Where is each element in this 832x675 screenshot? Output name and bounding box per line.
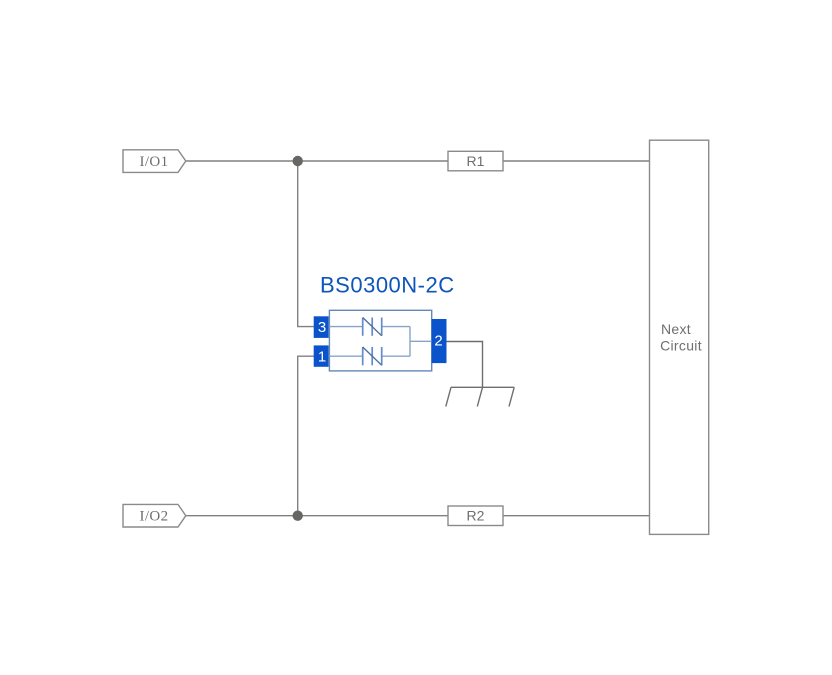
svg-text:1: 1 (318, 349, 326, 366)
svg-text:R1: R1 (467, 153, 485, 169)
svg-text:Next: Next (661, 321, 691, 337)
svg-text:BS0300N-2C: BS0300N-2C (320, 273, 455, 298)
svg-text:I/O2: I/O2 (139, 509, 168, 525)
svg-text:3: 3 (318, 319, 326, 336)
svg-text:R2: R2 (467, 508, 485, 524)
svg-text:Circuit: Circuit (660, 338, 702, 354)
svg-text:I/O1: I/O1 (139, 154, 168, 170)
svg-text:2: 2 (434, 333, 442, 350)
